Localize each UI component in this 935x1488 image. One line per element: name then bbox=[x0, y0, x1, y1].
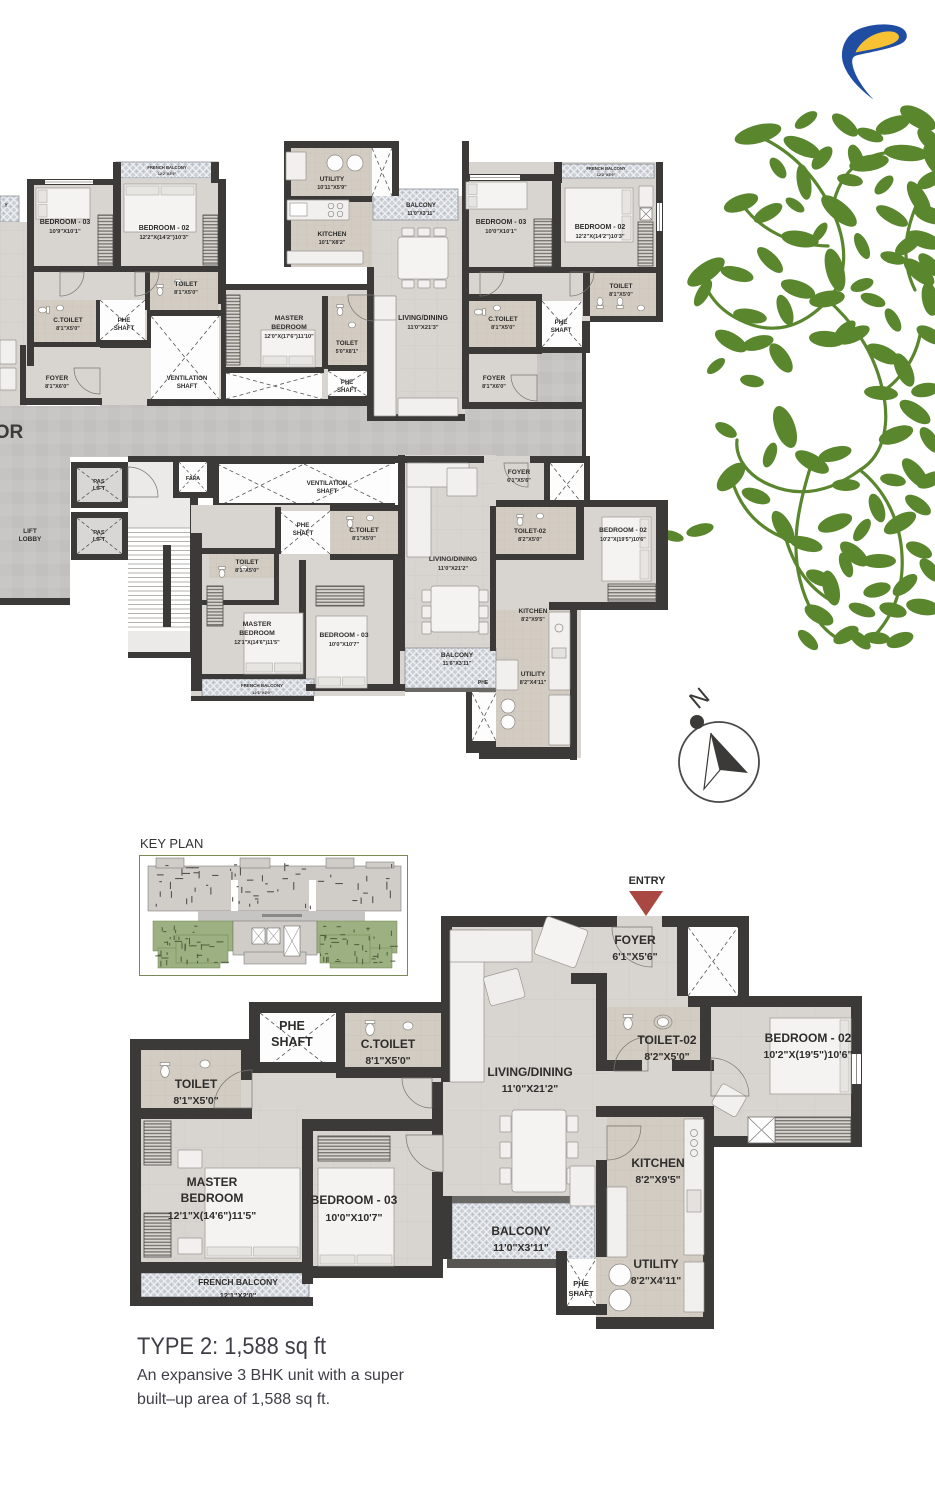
svg-text:FOYER: FOYER bbox=[508, 469, 531, 476]
svg-text:BALCONY: BALCONY bbox=[441, 652, 474, 659]
svg-text:FRENCH BALCONY: FRENCH BALCONY bbox=[241, 683, 283, 688]
svg-text:LIVING/DINING: LIVING/DINING bbox=[429, 556, 477, 563]
svg-text:8'1"X5'0": 8'1"X5'0" bbox=[609, 292, 633, 298]
svg-text:LIFT: LIFT bbox=[93, 537, 106, 543]
svg-text:An expansive 3 BHK unit with a: An expansive 3 BHK unit with a super bbox=[137, 1367, 405, 1384]
svg-text:PHE: PHE bbox=[478, 680, 489, 686]
svg-text:12'1"X(14'6")11'5": 12'1"X(14'6")11'5" bbox=[234, 640, 280, 646]
svg-text:BEDROOM - 02: BEDROOM - 02 bbox=[575, 224, 626, 231]
svg-text:KITCHEN: KITCHEN bbox=[519, 608, 548, 615]
svg-text:10'2"X(19'5")10'6": 10'2"X(19'5")10'6" bbox=[600, 537, 646, 543]
svg-text:TYPE 2: 1,588 sq ft: TYPE 2: 1,588 sq ft bbox=[137, 1333, 326, 1360]
svg-text:8'1"X5'0": 8'1"X5'0" bbox=[352, 536, 376, 542]
svg-text:FAPA: FAPA bbox=[186, 476, 200, 482]
svg-text:SHAFT: SHAFT bbox=[114, 325, 135, 332]
svg-text:8'1"X5'0": 8'1"X5'0" bbox=[174, 290, 198, 296]
svg-text:PAS: PAS bbox=[93, 479, 105, 485]
svg-text:12'1"X(14'6")11'5": 12'1"X(14'6")11'5" bbox=[168, 1210, 256, 1222]
svg-text:10'0"X10'7": 10'0"X10'7" bbox=[326, 1212, 383, 1224]
svg-text:8'2"X5'0": 8'2"X5'0" bbox=[644, 1051, 689, 1063]
svg-text:8'2"X9'5": 8'2"X9'5" bbox=[521, 617, 545, 623]
svg-text:6'1"X5'6": 6'1"X5'6" bbox=[507, 478, 531, 484]
svg-text:UTILITY: UTILITY bbox=[320, 176, 345, 183]
svg-text:11'0"X3'11": 11'0"X3'11" bbox=[407, 211, 435, 217]
svg-text:8'1"X5'0": 8'1"X5'0" bbox=[173, 1095, 218, 1107]
svg-text:8'1"X5'0": 8'1"X5'0" bbox=[491, 325, 515, 331]
svg-text:MASTER: MASTER bbox=[187, 1175, 238, 1189]
svg-text:8'2"X5'0": 8'2"X5'0" bbox=[518, 537, 542, 543]
svg-text:VENTILATION: VENTILATION bbox=[167, 375, 208, 382]
svg-text:10'0"X10'1": 10'0"X10'1" bbox=[485, 229, 517, 235]
svg-text:PHE: PHE bbox=[297, 522, 310, 529]
svg-text:FRENCH BALCONY: FRENCH BALCONY bbox=[198, 1277, 278, 1287]
svg-text:LIVING/DINING: LIVING/DINING bbox=[487, 1065, 572, 1079]
svg-text:8'2"X9'5": 8'2"X9'5" bbox=[635, 1174, 680, 1186]
svg-text:11'0"X21'2": 11'0"X21'2" bbox=[502, 1083, 558, 1095]
svg-text:TOILET: TOILET bbox=[175, 1077, 218, 1091]
svg-text:8'1"X6'0": 8'1"X6'0" bbox=[482, 384, 506, 390]
svg-text:TOILET: TOILET bbox=[610, 283, 633, 290]
svg-text:FRENCH BALCONY: FRENCH BALCONY bbox=[147, 165, 187, 170]
svg-text:BALCONY: BALCONY bbox=[406, 203, 436, 209]
svg-text:C.TOILET: C.TOILET bbox=[53, 317, 83, 324]
svg-text:8'1"X5'0": 8'1"X5'0" bbox=[235, 568, 259, 574]
svg-text:8'1"X6'0": 8'1"X6'0" bbox=[45, 384, 69, 390]
svg-text:12'2"X(14'2")10'3": 12'2"X(14'2")10'3" bbox=[139, 235, 188, 241]
svg-text:LIFT: LIFT bbox=[93, 486, 106, 492]
svg-text:BEDROOM - 03: BEDROOM - 03 bbox=[40, 219, 91, 226]
svg-text:6'1"X5'6": 6'1"X5'6" bbox=[612, 951, 657, 963]
svg-text:BEDROOM - 02: BEDROOM - 02 bbox=[139, 225, 190, 232]
svg-text:10'0"X10'7": 10'0"X10'7" bbox=[329, 642, 360, 648]
svg-text:VENTILATION: VENTILATION bbox=[307, 480, 348, 487]
svg-text:5'0"X8'1": 5'0"X8'1" bbox=[336, 349, 359, 355]
svg-text:LIVING/DINING: LIVING/DINING bbox=[398, 315, 448, 322]
svg-text:MASTER: MASTER bbox=[275, 315, 304, 322]
svg-text:PHE: PHE bbox=[573, 1279, 588, 1288]
svg-text:SHAFT: SHAFT bbox=[317, 488, 338, 495]
svg-text:PHE: PHE bbox=[555, 319, 568, 326]
svg-text:UTILITY: UTILITY bbox=[633, 1257, 678, 1271]
svg-text:KITCHEN: KITCHEN bbox=[318, 231, 347, 238]
svg-text:BEDROOM - 03: BEDROOM - 03 bbox=[319, 632, 368, 639]
svg-text:FOYER: FOYER bbox=[614, 933, 656, 947]
svg-text:10'1"X8'2": 10'1"X8'2" bbox=[319, 240, 346, 246]
svg-text:10'9"X10'1": 10'9"X10'1" bbox=[49, 229, 81, 235]
svg-text:SHAFT: SHAFT bbox=[177, 383, 198, 390]
svg-text:BALCONY: BALCONY bbox=[491, 1224, 550, 1238]
svg-text:KEY PLAN: KEY PLAN bbox=[140, 836, 203, 851]
svg-text:MASTER: MASTER bbox=[243, 621, 272, 628]
svg-text:FOYER: FOYER bbox=[46, 375, 69, 382]
svg-text:TOILET: TOILET bbox=[336, 340, 358, 347]
svg-text:BEDROOM - 03: BEDROOM - 03 bbox=[311, 1193, 398, 1207]
svg-text:SHAFT: SHAFT bbox=[569, 1289, 594, 1298]
svg-text:BEDROOM - 02: BEDROOM - 02 bbox=[599, 527, 647, 534]
svg-text:KITCHEN: KITCHEN bbox=[631, 1156, 684, 1170]
svg-text:TOILET-02: TOILET-02 bbox=[514, 528, 546, 535]
svg-text:10'11"X5'9": 10'11"X5'9" bbox=[317, 185, 347, 191]
svg-text:PAS: PAS bbox=[93, 530, 105, 536]
svg-text:10'2"X(19'5")10'6": 10'2"X(19'5")10'6" bbox=[764, 1049, 853, 1061]
svg-text:12'2"X3'9": 12'2"X3'9" bbox=[597, 173, 616, 177]
svg-text:BEDROOM: BEDROOM bbox=[271, 324, 307, 331]
svg-text:11'0"X21'3": 11'0"X21'3" bbox=[407, 325, 438, 331]
svg-text:11'6"X3'11": 11'6"X3'11" bbox=[443, 661, 472, 667]
svg-text:PHE: PHE bbox=[341, 380, 353, 386]
svg-text:built–up area of 1,588 sq ft.: built–up area of 1,588 sq ft. bbox=[137, 1391, 330, 1408]
svg-text:UTILITY: UTILITY bbox=[521, 671, 546, 678]
svg-text:PHE: PHE bbox=[118, 317, 131, 324]
svg-text:PHE: PHE bbox=[279, 1019, 305, 1033]
svg-text:OR: OR bbox=[0, 422, 24, 443]
svg-text:BEDROOM - 03: BEDROOM - 03 bbox=[476, 219, 527, 226]
svg-text:12'1"X2'0": 12'1"X2'0" bbox=[252, 690, 272, 695]
svg-text:TOILET: TOILET bbox=[236, 559, 259, 566]
svg-text:TOILET: TOILET bbox=[175, 281, 198, 288]
svg-text:FOYER: FOYER bbox=[483, 375, 506, 382]
svg-text:SHAFT: SHAFT bbox=[551, 327, 572, 334]
svg-text:ENTRY: ENTRY bbox=[629, 875, 667, 887]
svg-text:8'1"X5'0": 8'1"X5'0" bbox=[56, 326, 80, 332]
svg-text:C.TOILET: C.TOILET bbox=[349, 527, 379, 534]
svg-text:8'1"X5'0": 8'1"X5'0" bbox=[365, 1055, 410, 1067]
svg-text:SHAFT: SHAFT bbox=[337, 388, 357, 394]
svg-text:C.TOILET: C.TOILET bbox=[361, 1037, 416, 1051]
svg-text:SHAFT: SHAFT bbox=[293, 530, 314, 537]
svg-text:LIFT: LIFT bbox=[23, 528, 37, 535]
svg-text:BEDROOM: BEDROOM bbox=[181, 1191, 244, 1205]
svg-text:11'0"X21'2": 11'0"X21'2" bbox=[438, 566, 468, 572]
svg-text:8'2"X4'11": 8'2"X4'11" bbox=[631, 1275, 682, 1287]
svg-text:BEDROOM: BEDROOM bbox=[239, 630, 275, 637]
svg-text:C.TOILET: C.TOILET bbox=[488, 316, 518, 323]
svg-text:SHAFT: SHAFT bbox=[271, 1035, 313, 1049]
svg-text:BEDROOM - 02: BEDROOM - 02 bbox=[765, 1031, 852, 1045]
svg-text:12'2"X(14'2")10'3": 12'2"X(14'2")10'3" bbox=[575, 234, 624, 240]
svg-text:FRENCH BALCONY: FRENCH BALCONY bbox=[586, 166, 626, 171]
svg-text:11'0"X3'11": 11'0"X3'11" bbox=[493, 1242, 549, 1254]
svg-text:LOBBY: LOBBY bbox=[19, 536, 42, 543]
svg-text:TOILET-02: TOILET-02 bbox=[637, 1033, 696, 1047]
svg-text:12'0"X(17'6")11'10": 12'0"X(17'6")11'10" bbox=[264, 334, 314, 340]
svg-text:12'2"X3'9": 12'2"X3'9" bbox=[158, 172, 177, 176]
svg-text:8'2"X4'11": 8'2"X4'11" bbox=[520, 680, 547, 686]
svg-text:12'1"X2'0": 12'1"X2'0" bbox=[220, 1291, 257, 1300]
